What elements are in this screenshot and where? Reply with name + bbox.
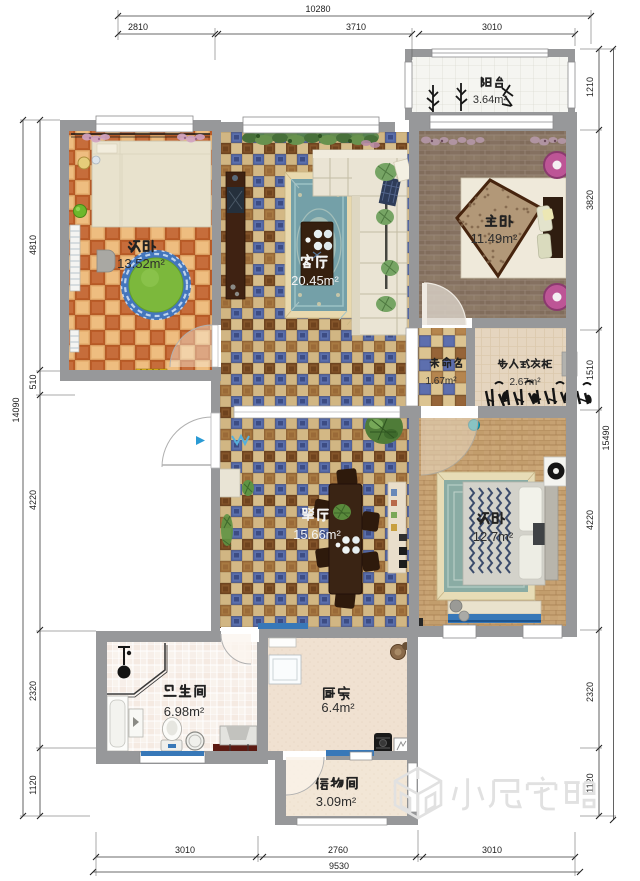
svg-text:4220: 4220 — [28, 490, 38, 510]
svg-text:6.98m²: 6.98m² — [164, 704, 205, 719]
svg-text:3710: 3710 — [346, 22, 366, 32]
svg-text:15.66m²: 15.66m² — [293, 527, 341, 542]
svg-text:11.49m²: 11.49m² — [471, 231, 518, 246]
svg-text:3.09m²: 3.09m² — [316, 794, 357, 809]
svg-text:510: 510 — [28, 374, 38, 389]
svg-text:1510: 1510 — [585, 360, 595, 380]
svg-text:3820: 3820 — [585, 190, 595, 210]
svg-text:3010: 3010 — [482, 845, 502, 855]
svg-text:20.45m²: 20.45m² — [291, 273, 339, 288]
svg-text:2.67m²: 2.67m² — [509, 377, 541, 388]
svg-text:1.67m²: 1.67m² — [425, 376, 457, 387]
svg-text:14090: 14090 — [11, 397, 21, 422]
svg-text:12.7m²: 12.7m² — [473, 529, 514, 544]
svg-text:2760: 2760 — [328, 845, 348, 855]
svg-text:2320: 2320 — [28, 681, 38, 701]
svg-text:3010: 3010 — [175, 845, 195, 855]
svg-text:15490: 15490 — [601, 425, 611, 450]
svg-text:1210: 1210 — [585, 77, 595, 97]
svg-text:2810: 2810 — [128, 22, 148, 32]
svg-text:3.64m²: 3.64m² — [473, 94, 508, 106]
svg-text:13.52m²: 13.52m² — [117, 256, 165, 271]
svg-text:9530: 9530 — [329, 861, 349, 871]
svg-text:6.4m²: 6.4m² — [321, 700, 355, 715]
svg-text:2320: 2320 — [585, 682, 595, 702]
svg-text:3010: 3010 — [482, 22, 502, 32]
svg-text:10280: 10280 — [305, 4, 330, 14]
svg-text:4810: 4810 — [28, 235, 38, 255]
svg-text:1120: 1120 — [28, 775, 38, 794]
svg-text:4220: 4220 — [585, 510, 595, 530]
